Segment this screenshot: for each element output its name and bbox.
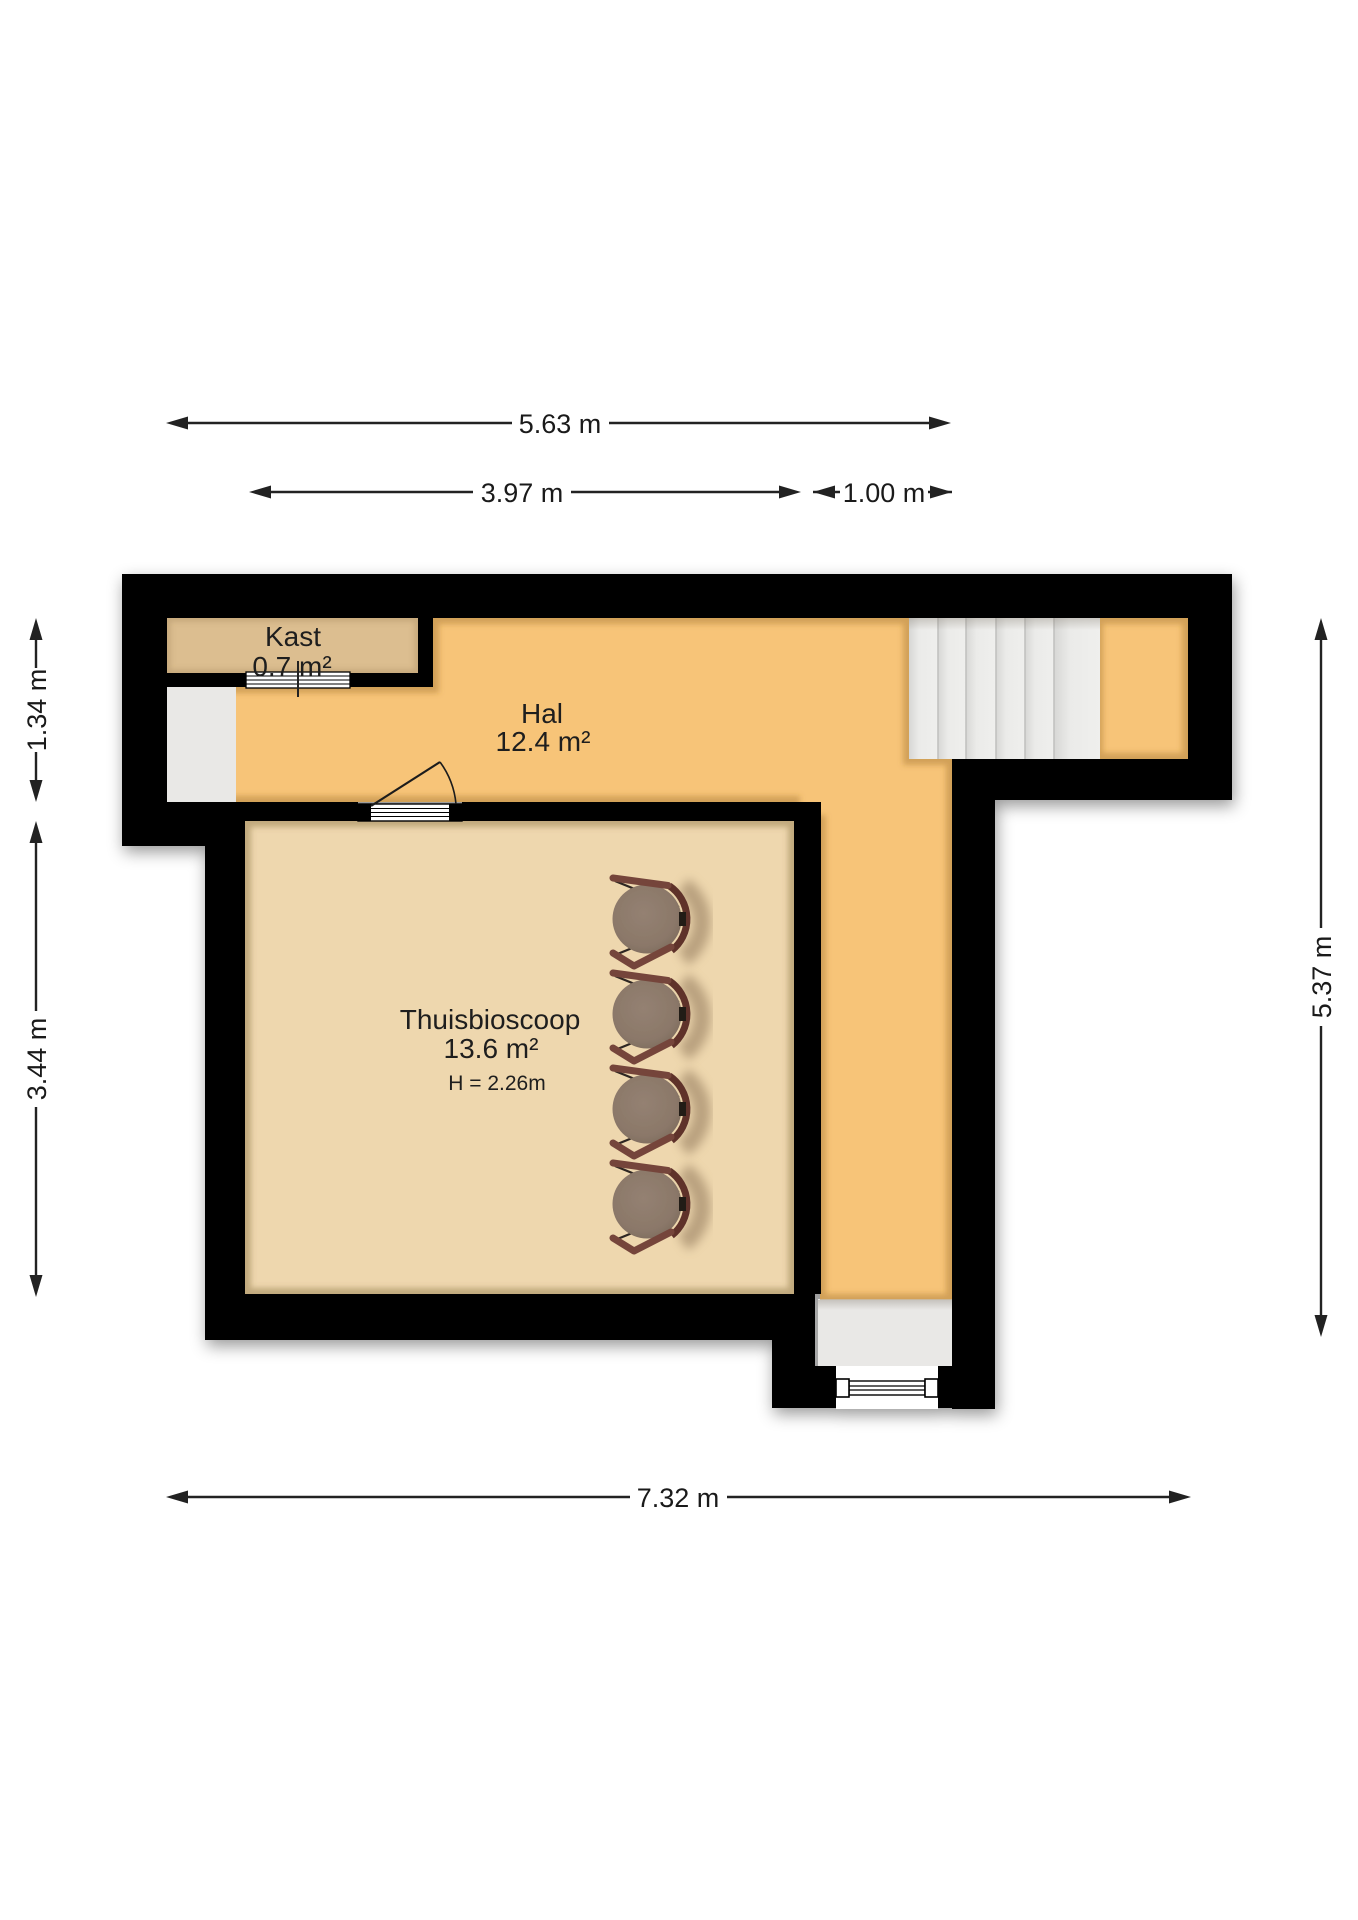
svg-text:H = 2.26m: H = 2.26m: [448, 1072, 545, 1095]
svg-text:13.6 m²: 13.6 m²: [444, 1033, 539, 1064]
svg-text:1.34 m: 1.34 m: [22, 669, 52, 752]
svg-text:0.7 m²: 0.7 m²: [252, 651, 331, 682]
svg-text:3.97 m: 3.97 m: [481, 478, 564, 508]
svg-text:Hal: Hal: [521, 698, 563, 729]
svg-text:Thuisbioscoop: Thuisbioscoop: [400, 1004, 581, 1035]
svg-text:12.4 m²: 12.4 m²: [496, 726, 591, 757]
svg-text:Kast: Kast: [265, 621, 321, 652]
svg-text:1.00 m: 1.00 m: [843, 478, 926, 508]
svg-text:7.32 m: 7.32 m: [637, 1483, 720, 1513]
svg-text:5.37 m: 5.37 m: [1307, 936, 1337, 1019]
svg-text:3.44 m: 3.44 m: [22, 1018, 52, 1101]
svg-text:5.63 m: 5.63 m: [519, 409, 602, 439]
